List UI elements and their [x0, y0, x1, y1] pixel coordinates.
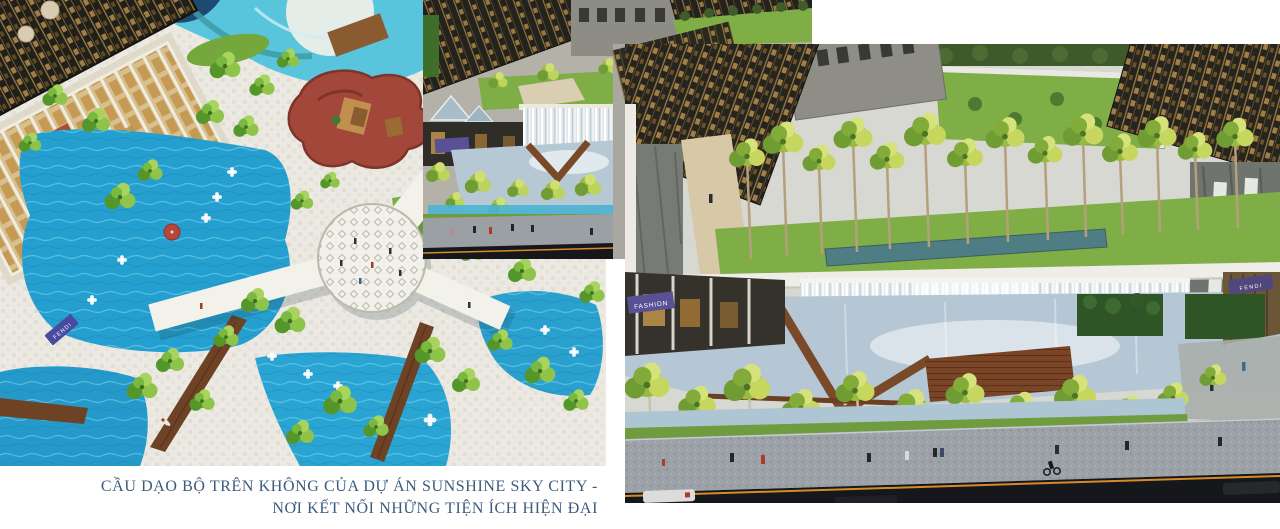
right-shopfronts: FASHION [625, 272, 785, 356]
hedge-center [1077, 293, 1163, 336]
right-fendi-shop: FENDI [1178, 272, 1280, 422]
caption-line-1: CẦU DẠO BỘ TRÊN KHÔNG CỦA DỰ ÁN SUNSHINE… [0, 476, 598, 498]
caption-line-2: NƠI KẾT NỐI NHỮNG TIỆN ÍCH HIỆN ĐẠI [0, 498, 598, 520]
white-car [643, 489, 695, 503]
page: FENDI [0, 0, 1280, 529]
right-render-promenade: FASHION FENDI [625, 44, 1280, 503]
right-render-svg: FASHION FENDI [625, 44, 1280, 503]
dark-car-right [1223, 481, 1280, 495]
green-wall [423, 15, 439, 77]
caption: CẦU DẠO BỘ TRÊN KHÔNG CỦA DỰ ÁN SUNSHINE… [0, 476, 598, 520]
hedge-right [1185, 294, 1265, 339]
middle-sidewalk [423, 214, 613, 248]
bridge-hub [318, 204, 426, 312]
